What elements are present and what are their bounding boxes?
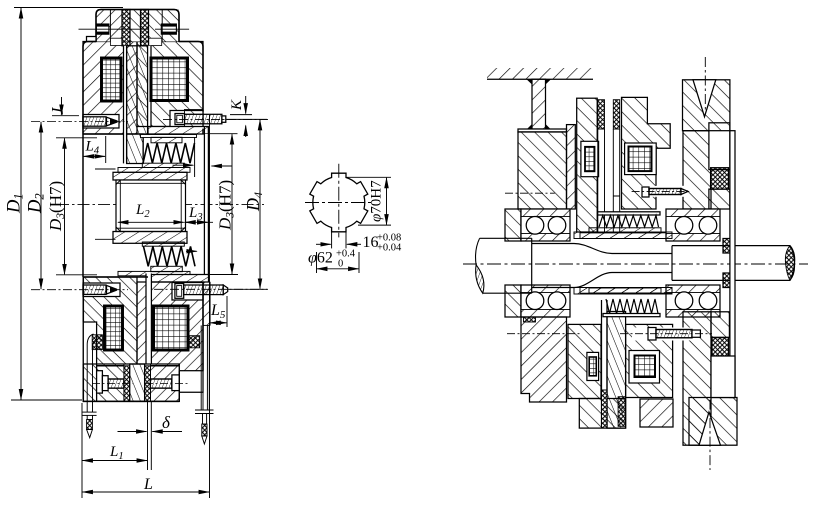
svg-text:K: K bbox=[229, 99, 245, 111]
svg-text:D3(H7): D3(H7) bbox=[46, 181, 67, 232]
svg-text:D3(H7): D3(H7) bbox=[216, 180, 237, 231]
svg-text:+0.04: +0.04 bbox=[377, 243, 402, 254]
svg-text:L: L bbox=[143, 476, 153, 493]
svg-text:0: 0 bbox=[338, 259, 343, 270]
svg-text:φ62: φ62 bbox=[308, 250, 333, 267]
svg-text:δ: δ bbox=[162, 413, 171, 432]
svg-text:J: J bbox=[48, 107, 67, 115]
svg-text:φ70H7: φ70H7 bbox=[369, 180, 385, 222]
